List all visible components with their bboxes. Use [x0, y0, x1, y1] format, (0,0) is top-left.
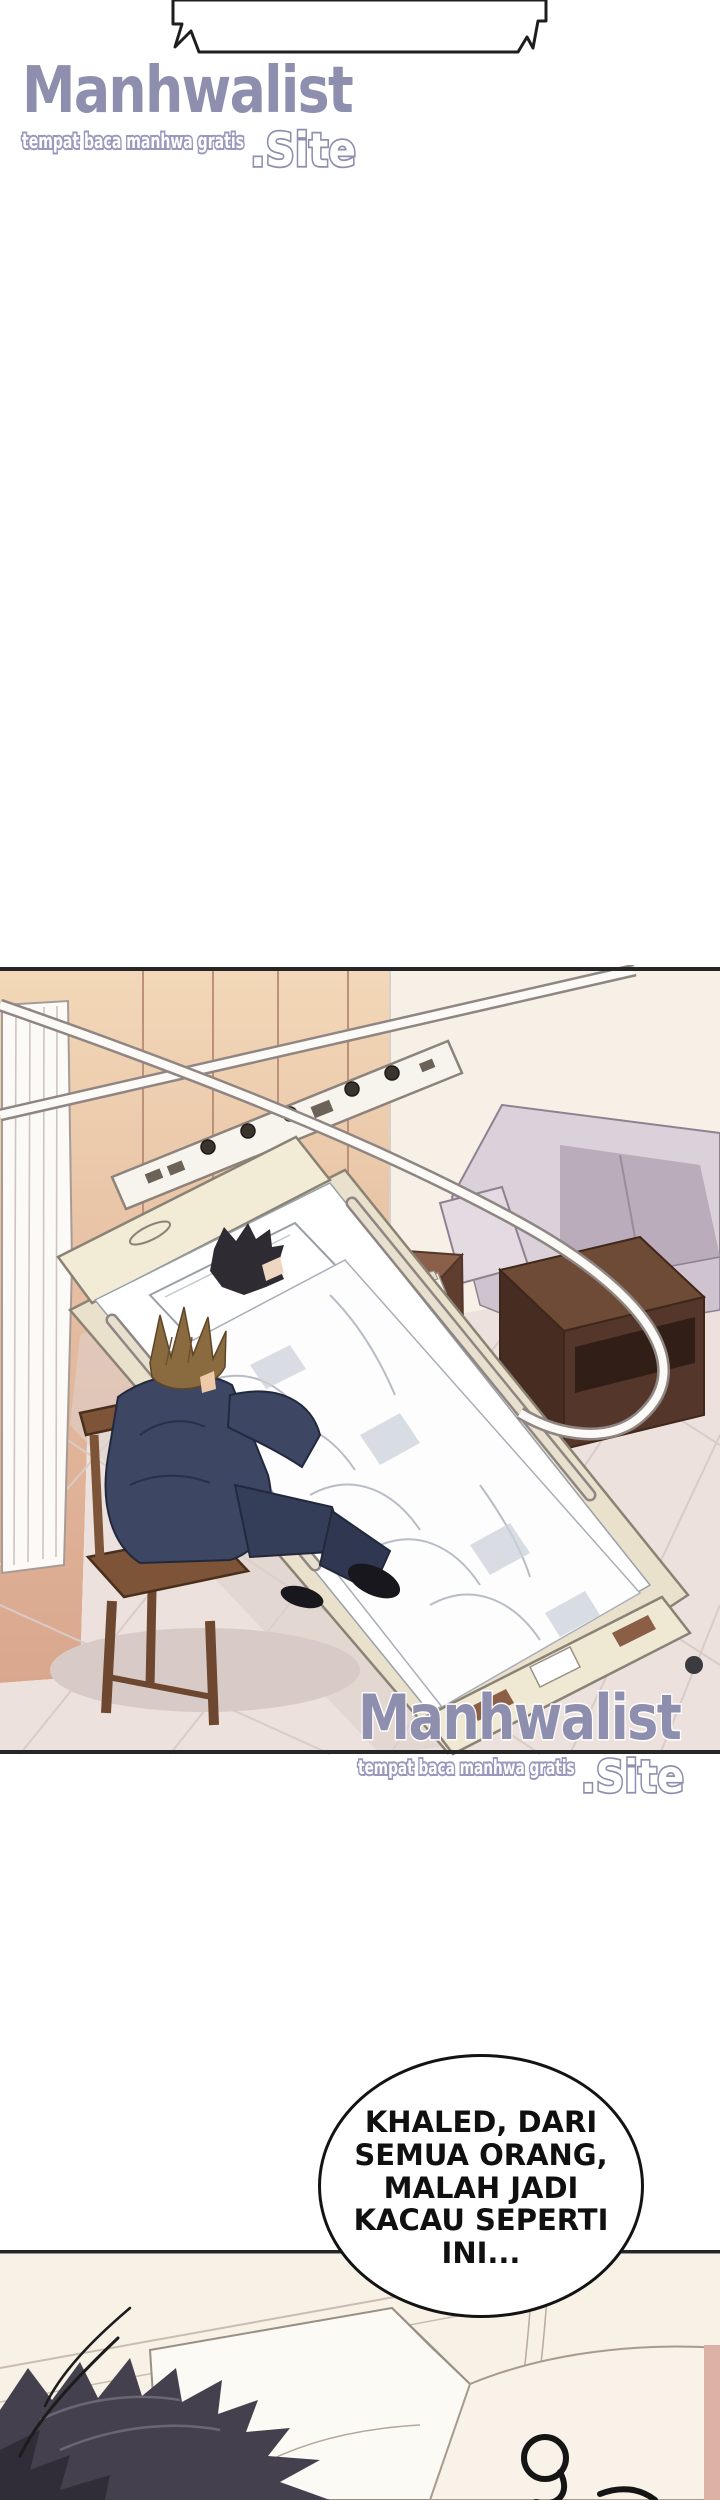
scene-panel-hospital-room: [0, 965, 720, 1757]
watermark-tagline: tempat baca manhwa gratis: [22, 129, 244, 153]
dialogue-text: KHALED, DARI SEMUA ORANG, MALAH JADI KAC…: [354, 2106, 609, 2270]
curtain: [2, 1001, 72, 1573]
watermark-logo-bottom: Manhwalist tempat baca manhwa gratis .Si…: [356, 1684, 688, 1800]
watermark-tagline: tempat baca manhwa gratis: [358, 1756, 575, 1779]
scene-root: [0, 967, 720, 1754]
chair-shadow: [50, 1628, 360, 1712]
top-speech-bubble: [0, 0, 720, 58]
top-speech-bubble-outline: [173, 0, 546, 52]
watermark-name: Manhwalist: [22, 56, 353, 128]
watermark-logo-top: Manhwalist tempat baca manhwa gratis .Si…: [20, 56, 360, 174]
wall-strip-right: [704, 2345, 720, 2500]
webtoon-page: { "watermark": { "name": "Manhwalist", "…: [0, 0, 720, 2500]
dialogue-bubble: KHALED, DARI SEMUA ORANG, MALAH JADI KAC…: [318, 2054, 644, 2318]
panel-border-top: [0, 967, 720, 971]
watermark-name: Manhwalist: [358, 1684, 681, 1754]
bed-caster: [685, 1656, 703, 1674]
watermark-suffix: .Site: [581, 1750, 685, 1800]
watermark-suffix: .Site: [250, 123, 356, 174]
bottom-panel-sleeping: [0, 2250, 720, 2500]
